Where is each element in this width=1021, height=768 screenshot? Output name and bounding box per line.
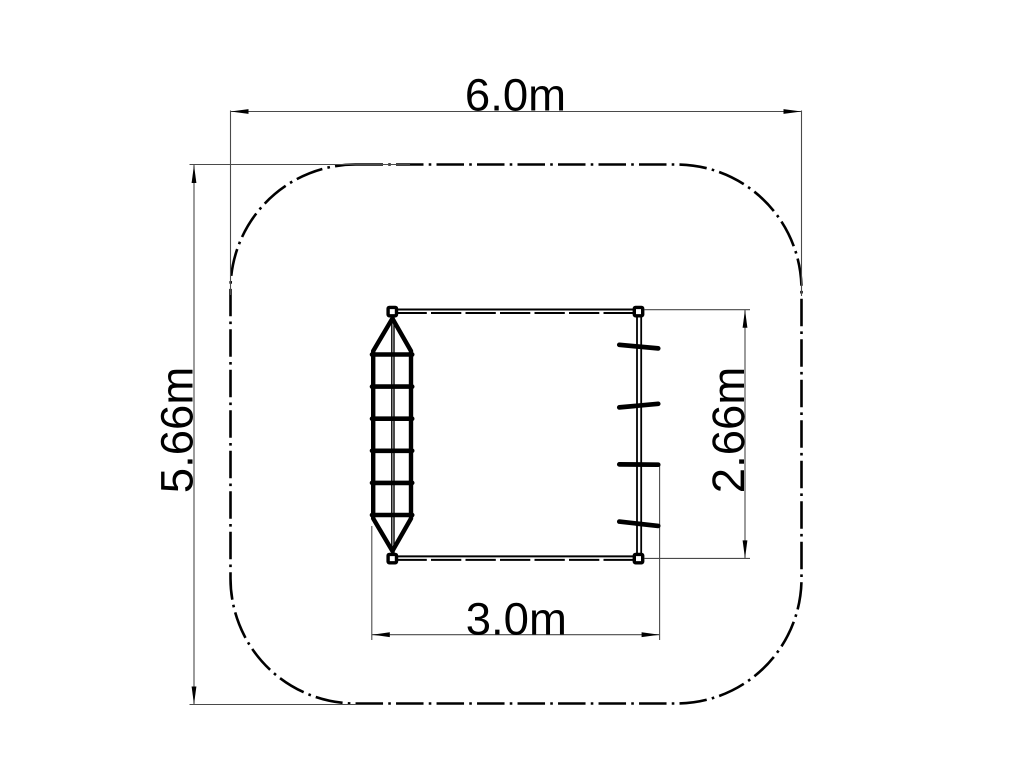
svg-text:2.66m: 2.66m (703, 367, 754, 493)
svg-text:3.0m: 3.0m (466, 593, 567, 644)
svg-text:5.66m: 5.66m (152, 367, 203, 493)
svg-text:6.0m: 6.0m (465, 70, 566, 121)
